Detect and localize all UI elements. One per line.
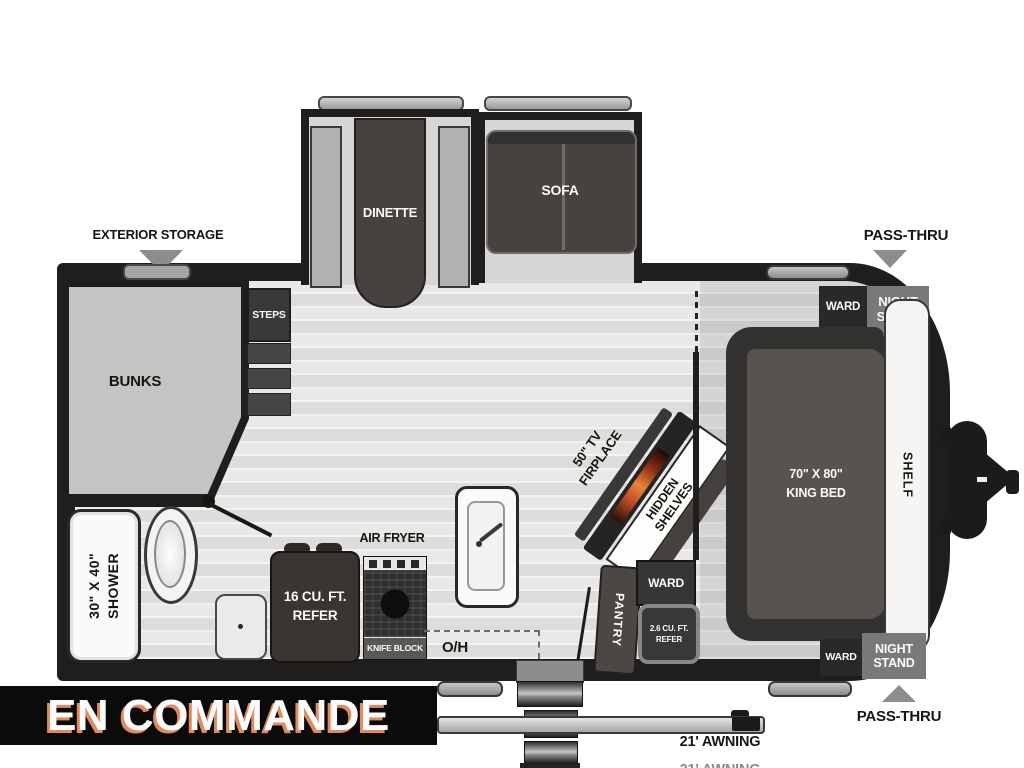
range-knob [369, 560, 377, 568]
step-tread [247, 368, 291, 389]
refrigerator-label: 16 CU. FT. REFER [284, 588, 347, 626]
kitchen-bottom-window [437, 681, 503, 697]
dinette-bench-left [310, 126, 342, 288]
bedroom-top-window [766, 265, 850, 280]
bathroom-sink-drain [238, 624, 243, 629]
wardrobe-top-label: WARD [826, 301, 860, 315]
bedroom-wall [693, 352, 699, 560]
range-knob [383, 560, 391, 568]
range-cooktop [364, 571, 426, 637]
room-divider-dashed [695, 291, 698, 353]
toilet-bowl [154, 520, 186, 588]
dinette-bench-right [438, 126, 470, 288]
step-tread [247, 393, 291, 416]
hitch-coupler [1006, 470, 1019, 494]
pass-thru-bottom-arrow [882, 685, 916, 702]
steps-label: STEPS [252, 309, 285, 322]
bunks-area [60, 276, 250, 508]
kitchen-sink [455, 486, 519, 608]
wardrobe-bottom-label: WARD [825, 651, 856, 664]
entry-step [517, 681, 583, 707]
entry-step [524, 741, 578, 764]
step-tread [247, 343, 291, 364]
pass-thru-bottom-label: PASS-THRU [850, 708, 948, 726]
refrigerator: 16 CU. FT. REFER [270, 551, 360, 663]
knife-block-label: KNIFE BLOCK [367, 643, 423, 653]
toilet [144, 506, 198, 604]
mini-refrigerator-label: 2.6 CU. FT. REFER [650, 623, 688, 645]
pantry-label: PANTRY [609, 593, 627, 648]
bed-shelf: SHELF [884, 299, 930, 651]
hitch-highlight [977, 477, 987, 482]
knife-block: KNIFE BLOCK [364, 638, 426, 659]
overhead-label: O/H [434, 639, 476, 657]
entry-door [516, 660, 584, 683]
floorplan-page: DINETTE SOFA BUNKS STEPS 30" X 40" SHOWE… [0, 0, 1024, 768]
awning-end-cap [732, 717, 760, 731]
range-knob [397, 560, 405, 568]
interior-steps: STEPS [247, 288, 291, 342]
sofa-slide-topper [484, 96, 632, 111]
nightstand-bottom-label: NIGHT STAND [873, 642, 914, 671]
bathroom-wall [63, 494, 211, 506]
shower: 30" X 40" SHOWER [67, 509, 141, 663]
exterior-storage-hatch [123, 264, 191, 280]
pass-thru-top-arrow [873, 250, 907, 268]
wardrobe-mid-label: WARD [648, 576, 684, 590]
awning-label: 21' AWNING [672, 734, 768, 751]
wardrobe-mid: WARD [636, 560, 696, 606]
dinette-label: DINETTE [363, 205, 417, 221]
sink-basin [467, 501, 505, 591]
status-banner-label: EN COMMANDE [47, 691, 390, 741]
bathroom-sink [215, 594, 267, 660]
range-knob [411, 560, 419, 568]
king-bed-label: 70" X 80" KING BED [786, 465, 846, 503]
nightstand-bottom: NIGHT STAND [862, 633, 926, 679]
mini-refrigerator: 2.6 CU. FT. REFER [638, 604, 700, 664]
shelf-label: SHELF [900, 452, 915, 498]
status-banner: EN COMMANDE [0, 686, 437, 745]
bedroom-bottom-window [768, 681, 852, 697]
awning-rail [437, 716, 765, 734]
range-knob-strip [364, 557, 426, 571]
exterior-storage-label: EXTERIOR STORAGE [90, 227, 226, 243]
range: KNIFE BLOCK [363, 556, 427, 660]
awning-label-clipped: 21' AWNING [672, 762, 768, 768]
air-fryer-label: AIR FRYER [352, 531, 432, 546]
king-bed: 70" X 80" KING BED [747, 349, 885, 619]
sofa-label: SOFA [520, 182, 600, 199]
shower-label: 30" X 40" SHOWER [85, 553, 123, 619]
dinette-table: DINETTE [354, 118, 426, 308]
entry-step-base [520, 763, 580, 768]
sofa-back [488, 132, 635, 144]
bunks-label: BUNKS [95, 373, 175, 391]
wardrobe-bottom: WARD [820, 639, 862, 676]
pass-thru-top-label: PASS-THRU [857, 227, 955, 245]
wardrobe-top: WARD [819, 286, 867, 330]
